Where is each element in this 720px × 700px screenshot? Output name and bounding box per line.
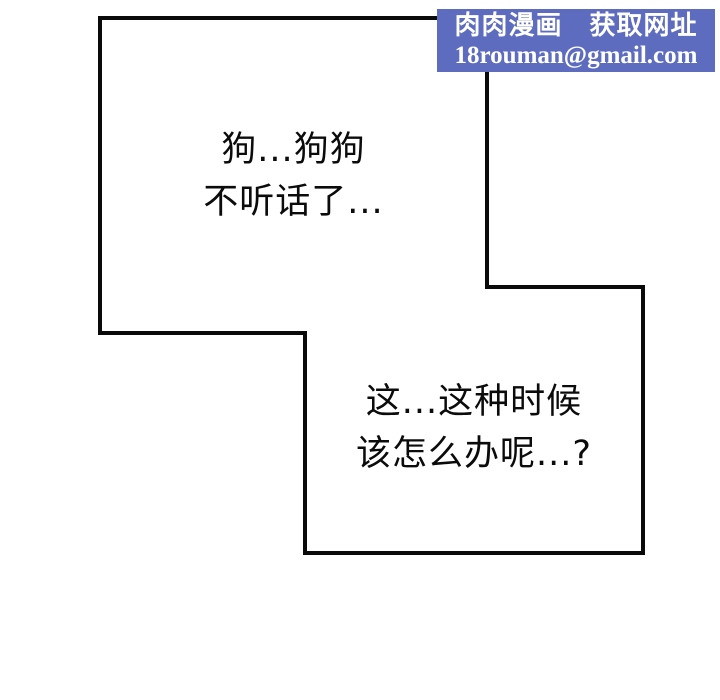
speech-line: 不听话了... — [203, 176, 383, 228]
speech-line: 狗...狗狗 — [221, 124, 365, 176]
speech-panel-top: 狗...狗狗 不听话了... — [100, 18, 487, 333]
watermark-email: 18rouman@gmail.com — [455, 42, 698, 70]
speech-panel-bottom: 这...这种时候 该怎么办呢...? — [305, 287, 643, 553]
watermark: 肉肉漫画 获取网址 18rouman@gmail.com — [437, 9, 715, 72]
watermark-title: 肉肉漫画 获取网址 — [454, 11, 697, 42]
comic-page: 狗...狗狗 不听话了... 这...这种时候 该怎么办呢...? 肉肉漫画 获… — [0, 0, 720, 700]
speech-line: 这...这种时候 — [366, 376, 582, 428]
speech-line: 该怎么办呢...? — [356, 428, 592, 480]
